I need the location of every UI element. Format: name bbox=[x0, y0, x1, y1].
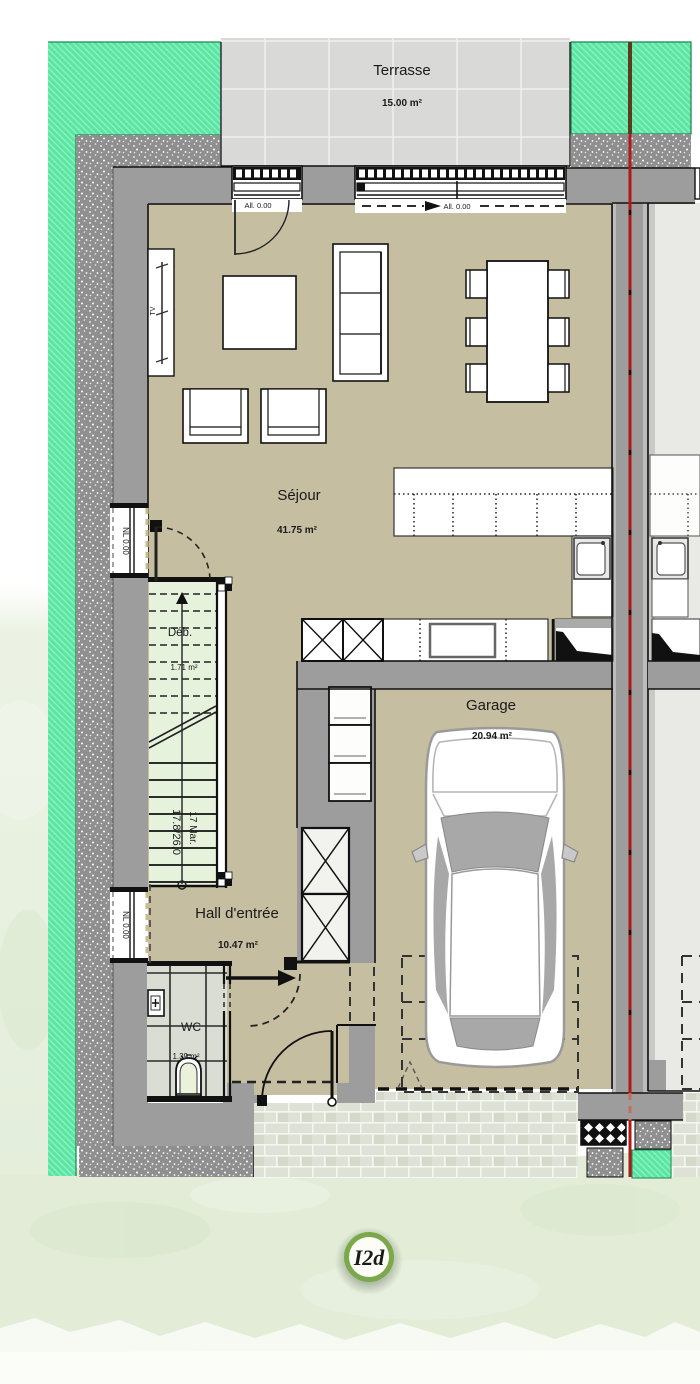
svg-text:TV: TV bbox=[150, 306, 157, 315]
svg-text:17 Mar.: 17 Mar. bbox=[187, 811, 198, 844]
svg-text:10.47 m²: 10.47 m² bbox=[218, 940, 259, 951]
svg-text:Garage: Garage bbox=[466, 697, 516, 714]
svg-text:1.71 m²: 1.71 m² bbox=[170, 663, 197, 672]
svg-text:All. 0.00: All. 0.00 bbox=[244, 201, 271, 210]
svg-text:NL 0.00: NL 0.00 bbox=[121, 527, 130, 555]
svg-text:15.00 m²: 15.00 m² bbox=[382, 98, 423, 109]
svg-text:NL 0.00: NL 0.00 bbox=[121, 911, 130, 939]
svg-text:All. 0.00: All. 0.00 bbox=[443, 202, 470, 211]
svg-text:41.75 m²: 41.75 m² bbox=[277, 525, 318, 536]
svg-text:20.94 m²: 20.94 m² bbox=[472, 731, 513, 742]
svg-text:WC: WC bbox=[181, 1020, 201, 1034]
svg-text:Terrasse: Terrasse bbox=[373, 62, 431, 79]
svg-text:Déb.: Déb. bbox=[168, 627, 192, 639]
svg-text:I2d: I2d bbox=[353, 1245, 386, 1270]
svg-text:Séjour: Séjour bbox=[277, 487, 320, 504]
svg-text:Hall d'entrée: Hall d'entrée bbox=[195, 905, 279, 922]
svg-text:1.39 m²: 1.39 m² bbox=[172, 1052, 199, 1061]
svg-text:17.8/26.0: 17.8/26.0 bbox=[170, 809, 182, 855]
